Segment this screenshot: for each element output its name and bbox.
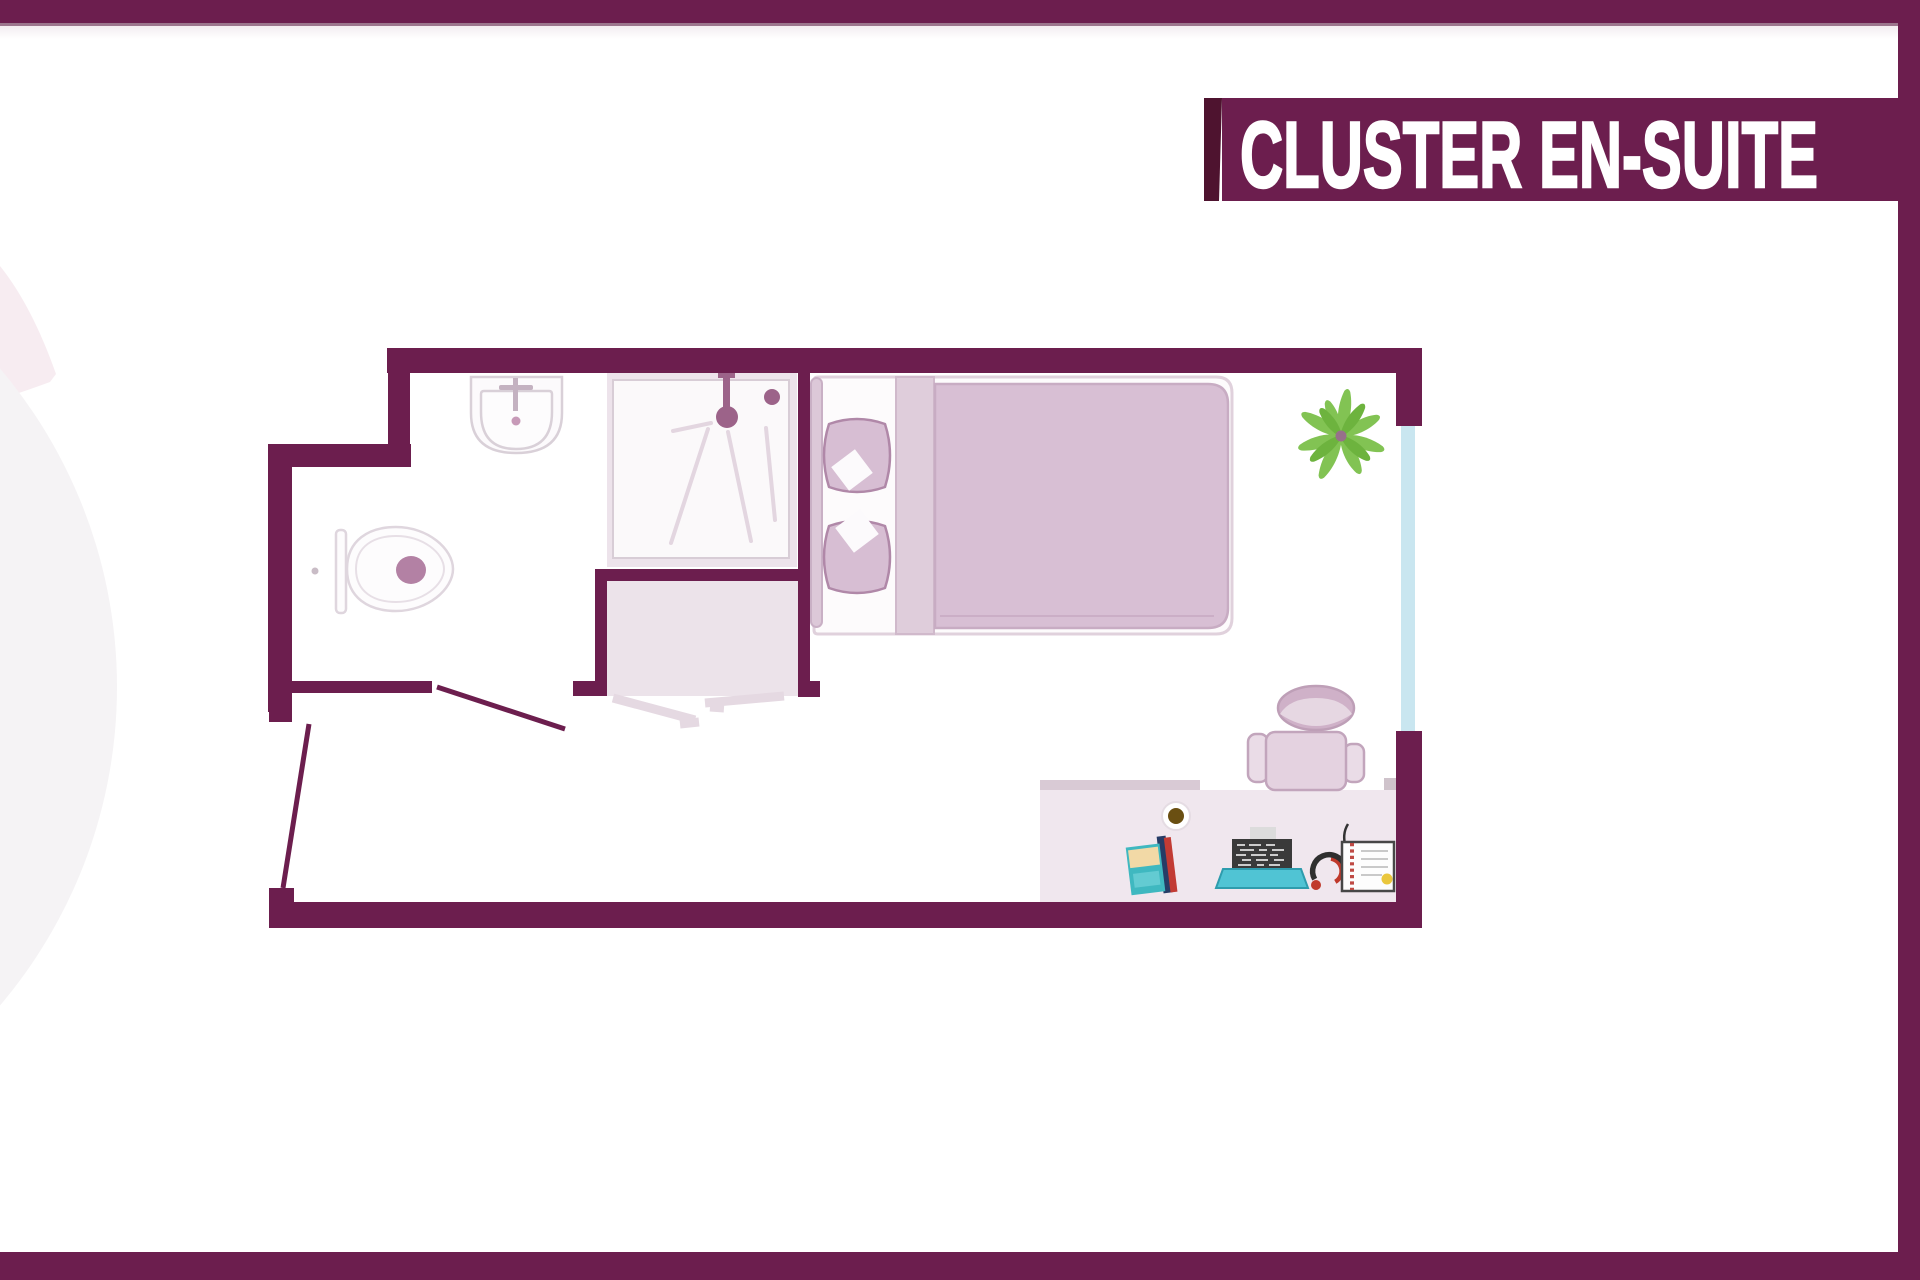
svg-text:CLUSTER EN-SUITE: CLUSTER EN-SUITE xyxy=(1240,102,1818,207)
